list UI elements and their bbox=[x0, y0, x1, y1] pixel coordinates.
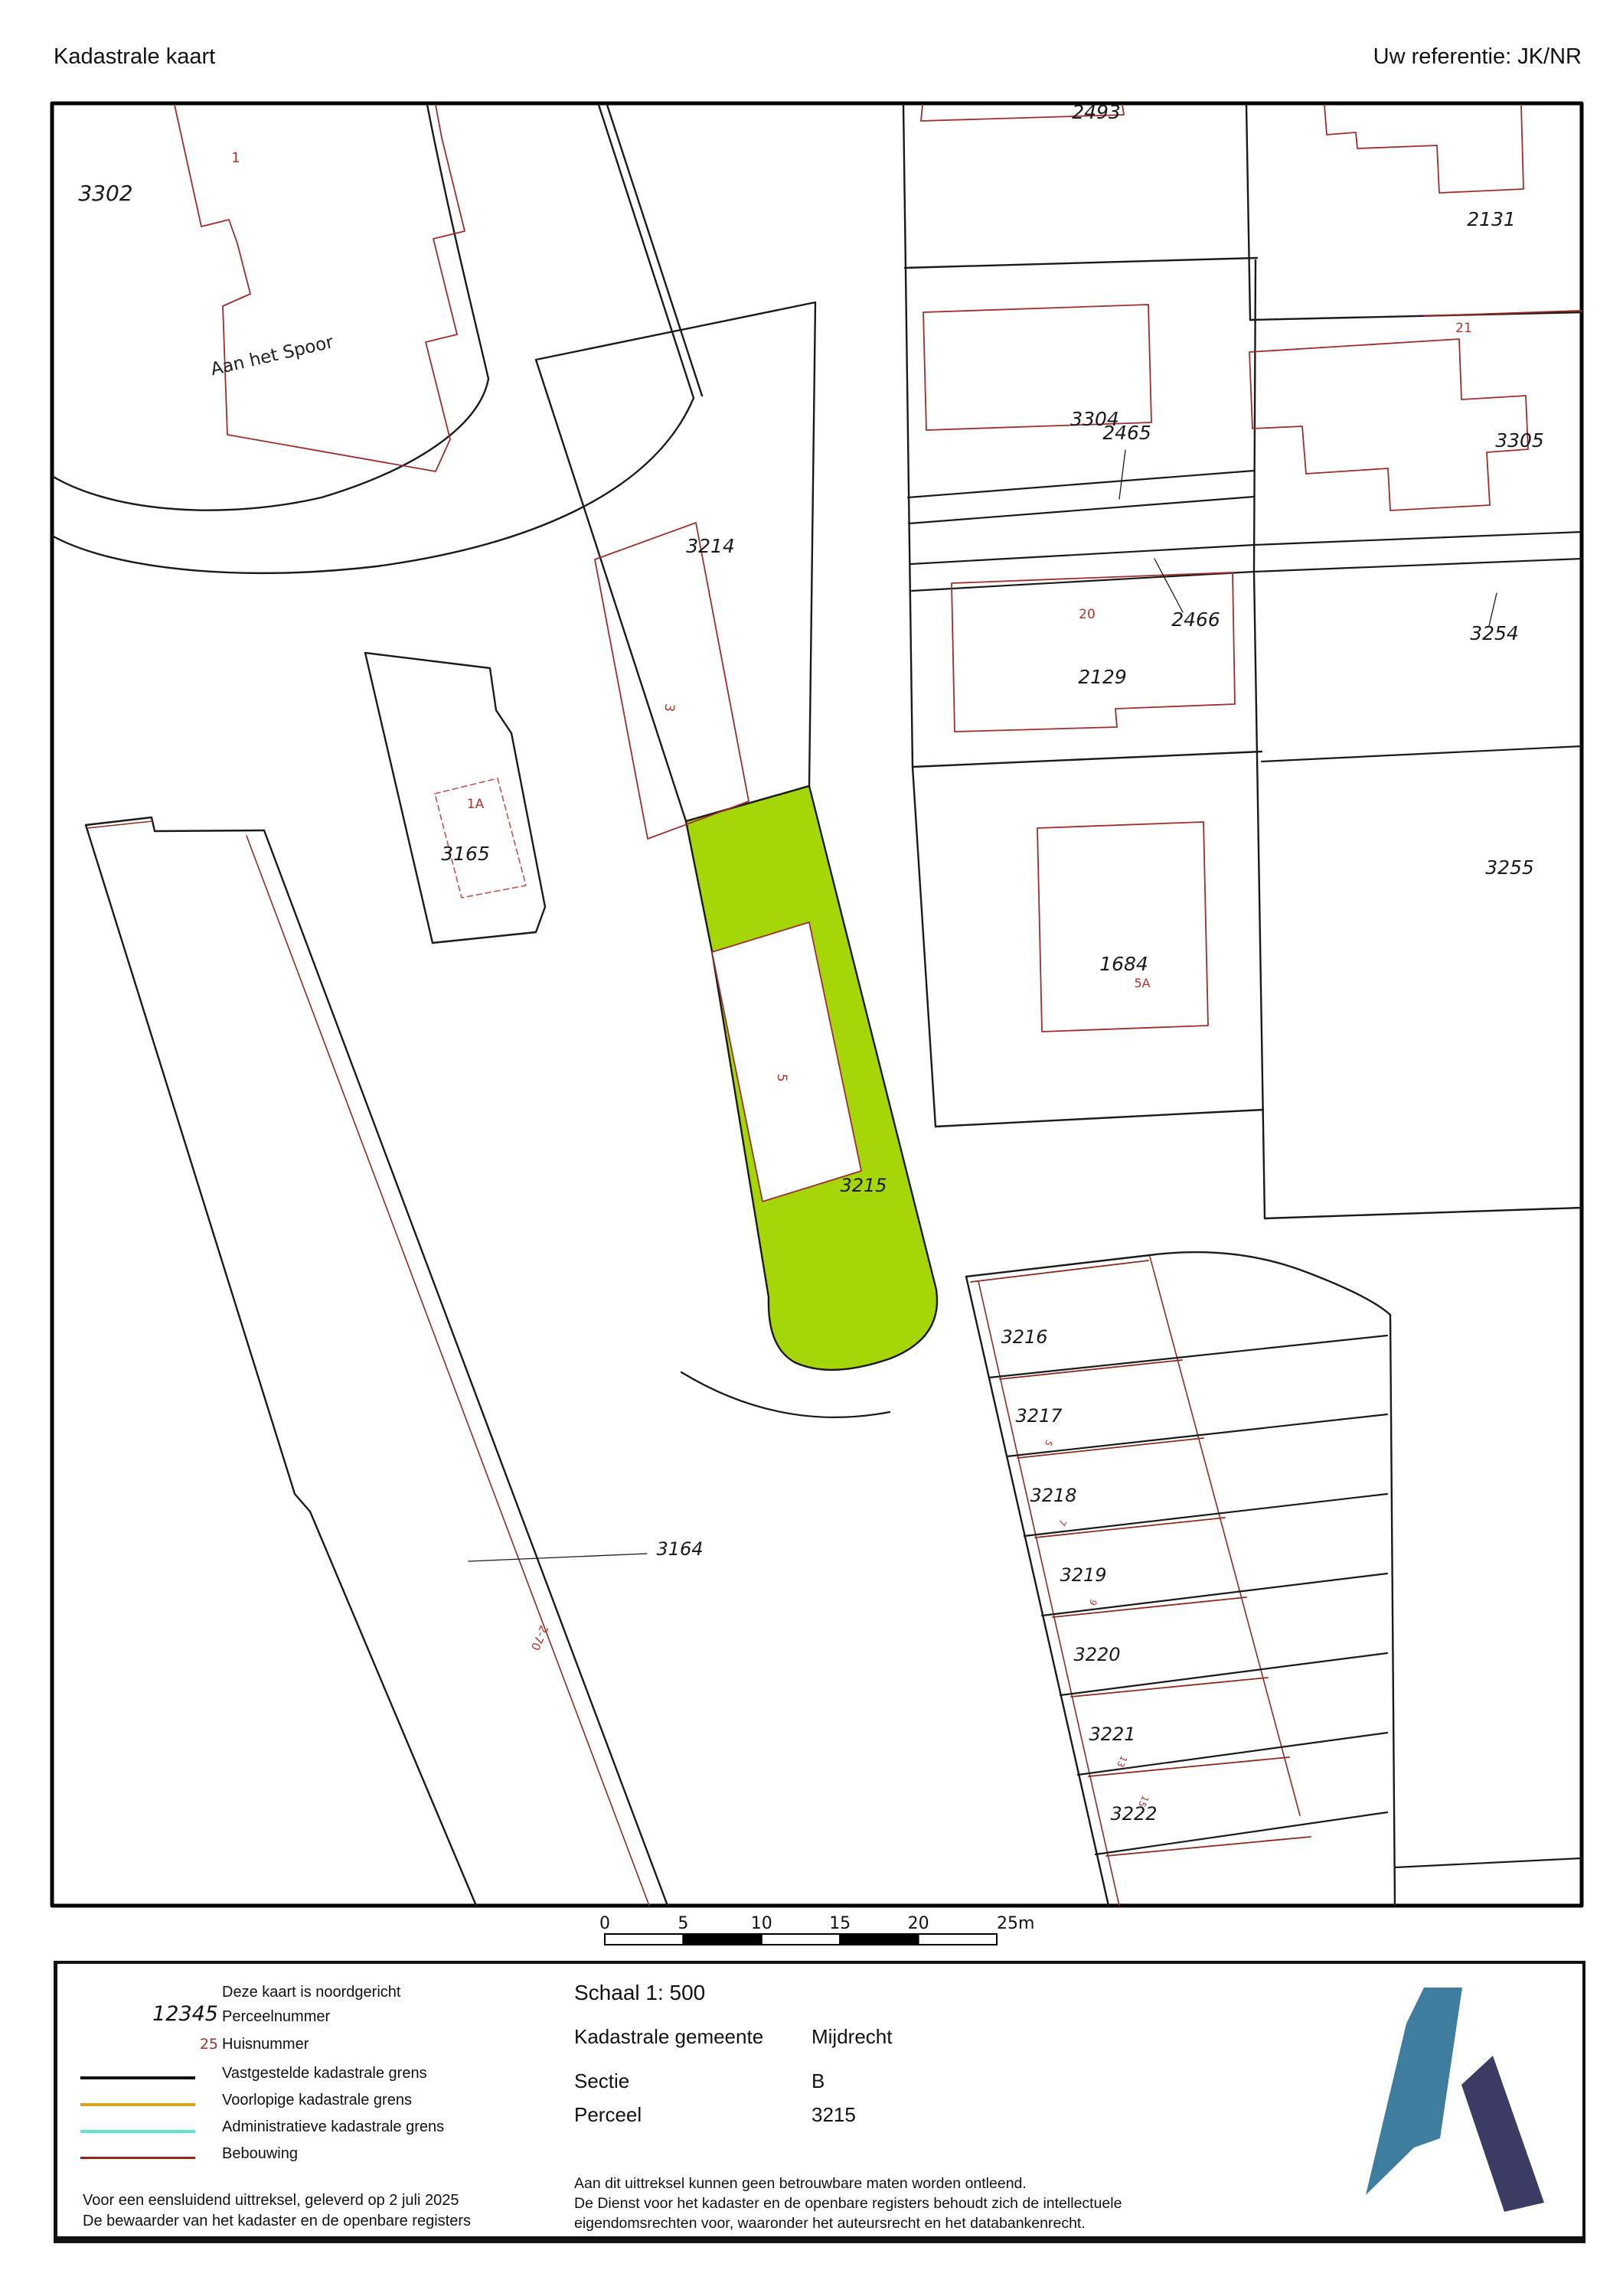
map-path-strips-left-red bbox=[978, 1281, 1119, 1906]
map-path-road2465-b bbox=[909, 497, 1254, 523]
map-path-building1 bbox=[175, 105, 465, 471]
parcel-label-3164: 3164 bbox=[656, 1538, 703, 1560]
house-number-1: 1 bbox=[231, 150, 240, 166]
scale-text: Schaal 1: 500 bbox=[574, 1981, 705, 2005]
map-path-divider-3218-3219 bbox=[1024, 1494, 1387, 1536]
scalebar-label-10: 10 bbox=[751, 1914, 772, 1933]
parcel-label-2129: 2129 bbox=[1078, 666, 1127, 688]
parcel-label-3255: 3255 bbox=[1485, 856, 1534, 879]
parcel-label-3222: 3222 bbox=[1110, 1803, 1157, 1825]
map-path-strip3164-top-red bbox=[87, 821, 152, 828]
parcel-label-2493: 2493 bbox=[1072, 101, 1121, 123]
map-path-rail-line-1 bbox=[599, 105, 694, 398]
scalebar-label-20: 20 bbox=[908, 1914, 929, 1933]
map-path-b1684-top bbox=[913, 752, 1262, 767]
map-path-b1684-bottom bbox=[936, 1110, 1263, 1127]
map-path-strip3164-top bbox=[86, 817, 264, 831]
map-path-rail-line-2 bbox=[607, 105, 702, 396]
legend-swatch-voorlopige-grens bbox=[80, 2103, 195, 2106]
map-path-parcel3214 bbox=[536, 302, 815, 821]
disclaimer-line-2: De Dienst voor het kadaster en de openba… bbox=[574, 2195, 1122, 2213]
map-path-leader-3254 bbox=[1489, 593, 1497, 626]
house-number-2-70: 2-70 bbox=[528, 1623, 551, 1652]
house-number-5: 5 bbox=[774, 1073, 790, 1082]
map-path-road2466-a bbox=[910, 532, 1582, 564]
perceel-label: Perceel bbox=[574, 2103, 642, 2127]
map-path-divider-3217-3218 bbox=[1007, 1414, 1387, 1456]
parcel-label-3219: 3219 bbox=[1060, 1564, 1106, 1586]
legend-label-administratieve-grens: Administratieve kadastrale grens bbox=[222, 2118, 444, 2136]
scalebar-segment-4 bbox=[919, 1934, 997, 1945]
street-name: Aan het Spoor bbox=[209, 332, 336, 380]
map-path-building2131 bbox=[1324, 105, 1523, 193]
parcel-label-2465: 2465 bbox=[1102, 422, 1151, 444]
map-path-strips-top bbox=[966, 1252, 1390, 1315]
map-path-leader-2465 bbox=[1119, 450, 1125, 499]
legend-label-perceelnummer: Perceelnummer bbox=[222, 2008, 330, 2026]
north-note: Deze kaart is noordgericht bbox=[222, 1984, 400, 2001]
parcel-label-3305: 3305 bbox=[1495, 429, 1544, 452]
disclaimer-line-3: eigendomsrechten voor, waaronder het aut… bbox=[574, 2215, 1086, 2232]
legend-swatch-vastgestelde-grens bbox=[80, 2076, 195, 2079]
legend-swatch-bebouwing bbox=[80, 2157, 195, 2159]
map-path-building1684 bbox=[1037, 822, 1208, 1032]
map-path-building3305 bbox=[1249, 339, 1528, 510]
house-number-3: 3 bbox=[661, 703, 677, 713]
map-path-leader-3164 bbox=[469, 1554, 647, 1561]
perceel-value: 3215 bbox=[811, 2103, 856, 2127]
legend-box: Deze kaart is noordgericht 12345 Perceel… bbox=[54, 1961, 1585, 2243]
legend-label-bebouwing: Bebouwing bbox=[222, 2145, 298, 2163]
parcel-label-3220: 3220 bbox=[1073, 1644, 1120, 1665]
parcel-label-3215: 3215 bbox=[840, 1175, 887, 1196]
map-path-divider-red-1 bbox=[1000, 1360, 1182, 1379]
scalebar-label-25m: 25m bbox=[997, 1914, 1034, 1933]
house-number-20: 20 bbox=[1079, 607, 1096, 622]
page: Kadastrale kaart Uw referentie: JK/NR 33… bbox=[0, 0, 1623, 2296]
house-number-9: 9 bbox=[1087, 1597, 1099, 1607]
scalebar-segment-1 bbox=[683, 1934, 761, 1945]
map-path-bottom-right-line bbox=[1395, 1858, 1582, 1867]
parcel-label-2131: 2131 bbox=[1467, 208, 1516, 230]
footer-line-2: De bewaarder van het kadaster en de open… bbox=[83, 2213, 471, 2230]
footer-line-1: Voor een eensluidend uittreksel, gelever… bbox=[83, 2192, 459, 2210]
map-path-v3254-left bbox=[1254, 572, 1265, 1218]
map-path-strip3164-left bbox=[86, 825, 476, 1906]
kadaster-logo-teal-wedge-icon bbox=[1366, 1988, 1462, 2195]
map-path-strips-left bbox=[966, 1277, 1109, 1906]
map-path-v2493-2131 bbox=[1246, 105, 1250, 320]
legend-sample-perceelnummer: 12345 bbox=[80, 2002, 218, 2026]
map-path-parcel3165 bbox=[365, 653, 545, 943]
parcel-label-3165: 3165 bbox=[441, 843, 490, 865]
map-path-road-arc-inner bbox=[52, 105, 488, 510]
gemeente-value: Mijdrecht bbox=[811, 2025, 892, 2049]
scalebar-segment-2 bbox=[762, 1934, 840, 1945]
map-path-b2131-bottom bbox=[1250, 312, 1582, 320]
kadaster-logo-navy-wedge-icon bbox=[1461, 2056, 1544, 2212]
parcel-label-3302: 3302 bbox=[78, 181, 132, 206]
parcel-label-1684: 1684 bbox=[1099, 953, 1148, 975]
scalebar-label-15: 15 bbox=[829, 1914, 851, 1933]
parcel-label-3217: 3217 bbox=[1015, 1405, 1063, 1427]
sectie-value: B bbox=[811, 2069, 825, 2093]
map-path-building3 bbox=[595, 523, 749, 839]
map-path-building20 bbox=[952, 572, 1235, 732]
legend-label-vastgestelde-grens: Vastgestelde kadastrale grens bbox=[222, 2065, 427, 2082]
house-number-1A: 1A bbox=[467, 797, 485, 812]
map-path-b3255-bottom bbox=[1265, 1208, 1582, 1218]
parcel-label-3214: 3214 bbox=[686, 535, 735, 557]
map-path-leader-2466 bbox=[1154, 559, 1183, 612]
map-path-strip3164-red bbox=[247, 836, 649, 1906]
map-path-block-left-edge bbox=[903, 105, 936, 1127]
gemeente-label: Kadastrale gemeente bbox=[574, 2025, 763, 2049]
legend-label-voorlopige-grens: Voorlopige kadastrale grens bbox=[222, 2092, 412, 2109]
map-path-v-block21-left bbox=[1254, 260, 1256, 572]
parcel-label-2466: 2466 bbox=[1171, 608, 1220, 631]
legend-sample-huisnummer: 25 bbox=[80, 2036, 218, 2053]
parcel-label-3216: 3216 bbox=[1001, 1326, 1047, 1348]
scalebar-label-0: 0 bbox=[599, 1914, 610, 1933]
kadaster-logo bbox=[1206, 1968, 1573, 2229]
legend-swatch-administratieve-grens bbox=[80, 2130, 195, 2133]
map-path-strip3164-right bbox=[264, 830, 668, 1906]
disclaimer-line-1: Aan dit uittreksel kunnen geen betrouwba… bbox=[574, 2175, 1027, 2193]
map-path-strips-red-slant bbox=[1150, 1257, 1300, 1815]
scalebar-label-5: 5 bbox=[678, 1914, 688, 1933]
parcel-label-3221: 3221 bbox=[1089, 1724, 1135, 1745]
house-number-13: 13 bbox=[1115, 1754, 1129, 1769]
map-path-strips-right-vert bbox=[1390, 1315, 1395, 1906]
house-number-5A: 5A bbox=[1134, 976, 1150, 990]
map-path-street-curve-below-green bbox=[681, 1372, 890, 1417]
parcel-label-3218: 3218 bbox=[1030, 1485, 1076, 1506]
map-path-divider-red-4 bbox=[1053, 1597, 1246, 1617]
scalebar-segment-3 bbox=[840, 1934, 918, 1945]
cadastral-map: 3302249321313304246533053214246621293254… bbox=[0, 0, 1623, 2296]
map-path-road2466-b bbox=[912, 559, 1582, 591]
scalebar-segment-0 bbox=[605, 1934, 683, 1945]
house-number-7: 7 bbox=[1056, 1518, 1069, 1528]
map-path-div3254-3255 bbox=[1262, 746, 1582, 762]
house-number-21: 21 bbox=[1455, 321, 1472, 336]
sectie-label: Sectie bbox=[574, 2069, 629, 2093]
map-path-divider-3216-3217 bbox=[989, 1336, 1387, 1378]
house-number-5: 5 bbox=[1043, 1438, 1055, 1448]
map-path-divider-red-7 bbox=[1106, 1837, 1311, 1856]
map-path-strips-top-red bbox=[971, 1261, 1148, 1282]
parcel-label-3254: 3254 bbox=[1470, 622, 1519, 644]
map-path-b2493-bottom bbox=[905, 258, 1257, 268]
legend-label-huisnummer: Huisnummer bbox=[222, 2036, 309, 2053]
map-path-road2465-a bbox=[908, 471, 1254, 497]
